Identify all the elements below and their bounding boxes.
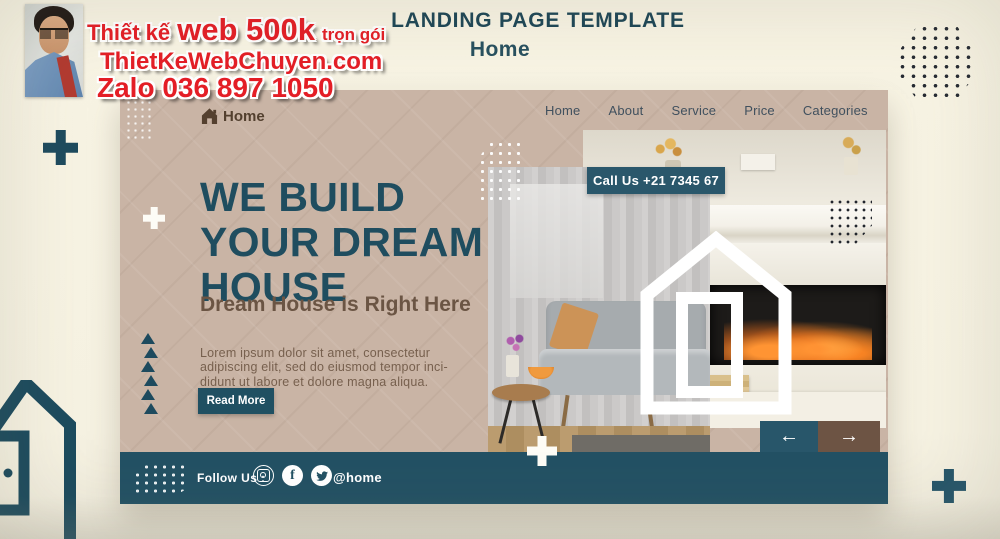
watermark-text: web 500k — [177, 12, 315, 48]
house-outline-decor — [0, 380, 80, 539]
nav-item-service[interactable]: Service — [671, 103, 716, 118]
hero-heading-line2: YOUR DREAM — [200, 220, 520, 265]
nav-item-about[interactable]: About — [608, 103, 643, 118]
twitter-icon[interactable] — [311, 465, 332, 486]
triangle-decor — [141, 361, 155, 372]
logo-home[interactable]: Home — [200, 107, 265, 125]
nav-item-price[interactable]: Price — [744, 103, 775, 118]
photo-part-flowers — [838, 133, 864, 157]
triangle-decor-column — [141, 333, 158, 414]
photo-part-window — [510, 184, 603, 298]
arrow-right-icon: → — [839, 425, 859, 448]
dots-footer-decor — [133, 463, 187, 497]
page-background: LANDING PAGE TEMPLATE Home Home Home Abo… — [0, 0, 1000, 539]
house-outline-svg — [0, 380, 80, 539]
photo-part-glasses — [40, 28, 68, 39]
triangle-decor — [144, 403, 158, 414]
triangle-decor — [141, 333, 155, 344]
social-handle: @home — [333, 470, 382, 485]
landing-template-card: Home Home About Service Price Categories — [120, 90, 888, 504]
plus-decor-heading — [143, 207, 165, 229]
facebook-icon[interactable]: f — [282, 465, 303, 486]
template-footer: Follow Us : f @home — [120, 452, 888, 504]
photo-part-rug — [572, 435, 710, 452]
home-logo-icon — [200, 107, 219, 125]
promo-photo — [25, 4, 83, 97]
watermark-text: Thiết kế — [87, 20, 170, 46]
watermark-text: trọn gói — [322, 25, 385, 45]
arrow-left-icon: ← — [779, 425, 799, 448]
photo-part-vase — [506, 355, 519, 377]
nav-item-categories[interactable]: Categories — [803, 103, 868, 118]
photo-part-side-table — [492, 384, 550, 401]
triangle-decor — [144, 375, 158, 386]
house-logo-overlay-icon — [640, 231, 792, 415]
triangle-decor — [144, 347, 158, 358]
hero-tagline: Dream House is Right Here — [200, 293, 471, 317]
watermark-line-1: Thiết kế web 500k trọn gói — [87, 12, 385, 48]
photo-part-vase — [844, 157, 858, 175]
hero-heading: WE BUILD YOUR DREAM HOUSE — [200, 175, 520, 310]
body-line: Lorem ipsum dolor sit amet, consectetur — [200, 346, 448, 361]
prev-slide-button[interactable]: ← — [760, 421, 818, 452]
photo-part-flowers — [650, 136, 684, 162]
plus-decor-footer — [527, 436, 557, 466]
call-us-badge[interactable]: Call Us +21 7345 67 — [587, 167, 725, 194]
nav-item-home[interactable]: Home — [545, 103, 580, 118]
facebook-glyph: f — [290, 468, 295, 484]
hero-heading-line1: WE BUILD — [200, 175, 520, 220]
plus-decor-bottom-right — [932, 469, 966, 503]
hero-body-text: Lorem ipsum dolor sit amet, consectetur … — [200, 346, 448, 390]
photo-part-box — [741, 154, 775, 170]
social-icons: f — [253, 465, 332, 486]
twitter-bird-glyph — [316, 471, 328, 481]
triangle-decor — [141, 389, 155, 400]
next-slide-button[interactable]: → — [818, 421, 880, 452]
dots-hexagon-decor — [897, 24, 977, 102]
logo-label: Home — [223, 108, 265, 125]
read-more-button[interactable]: Read More — [198, 388, 274, 414]
instagram-glyph — [257, 469, 270, 482]
dots-nav-decor — [125, 99, 155, 139]
watermark-phone: Zalo 036 897 1050 — [97, 72, 334, 104]
photo-part-flowers — [504, 332, 526, 354]
instagram-icon[interactable] — [253, 465, 274, 486]
main-nav: Home About Service Price Categories — [545, 103, 868, 118]
body-line: adipiscing elit, sed do eiusmod tempor i… — [200, 360, 448, 375]
plus-decor-left — [43, 130, 78, 165]
